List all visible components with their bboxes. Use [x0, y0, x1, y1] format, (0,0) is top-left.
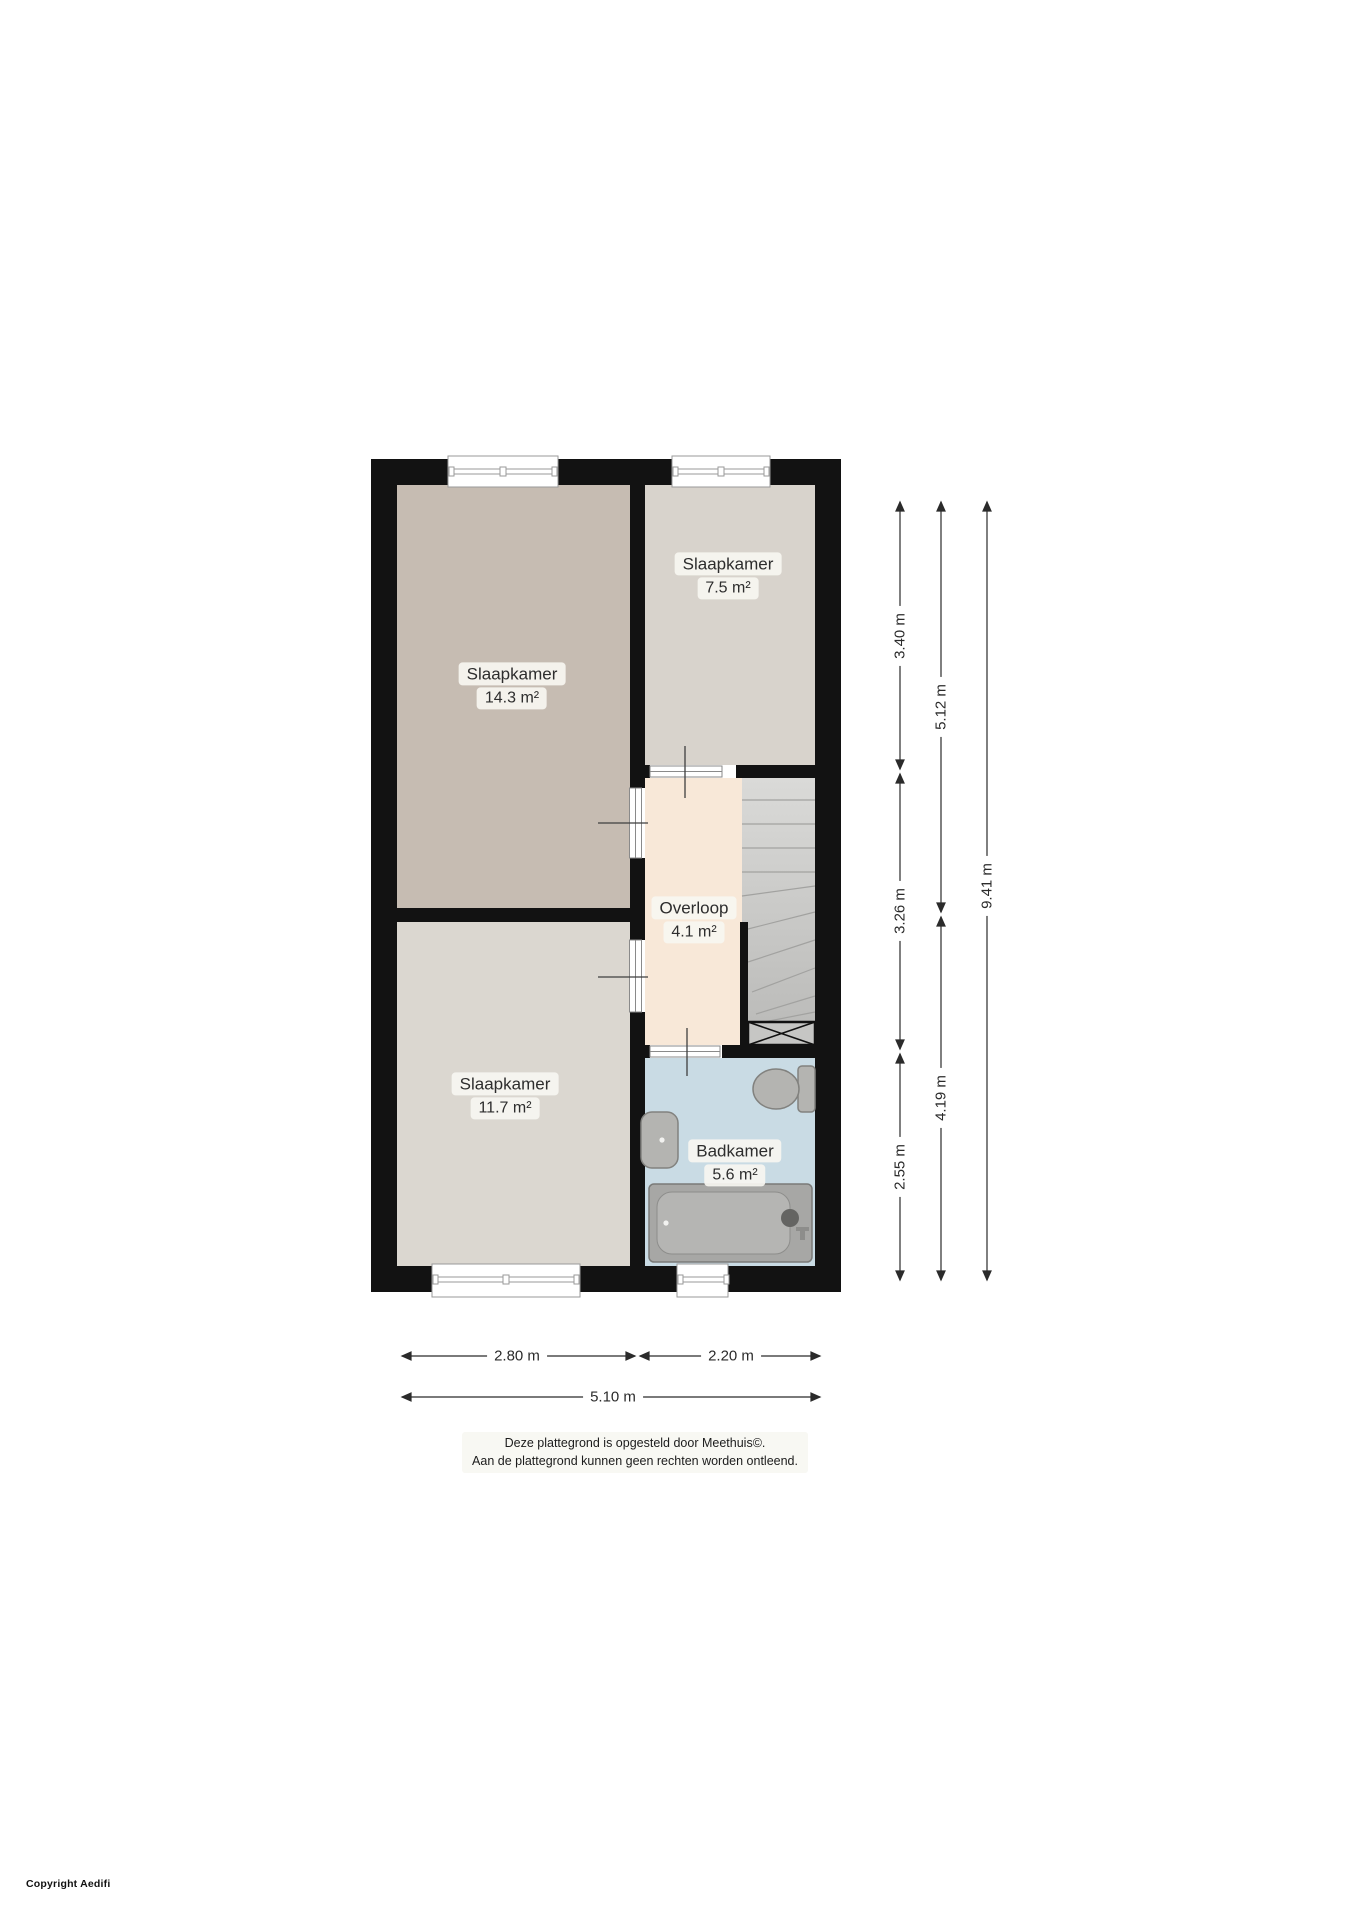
room-area: 5.6 m²: [704, 1165, 765, 1187]
dim-label-326: 3.26 m: [891, 881, 910, 941]
footer-note: Deze plattegrond is opgesteld door Meeth…: [462, 1432, 808, 1473]
room-label-overloop: Overloop 4.1 m²: [652, 896, 737, 943]
dim-label-255: 2.55 m: [891, 1137, 910, 1197]
wall-divider-upper: [630, 485, 645, 788]
window-bathroom: [677, 1264, 729, 1297]
room-name: Slaapkamer: [459, 662, 566, 685]
room-name: Badkamer: [688, 1139, 781, 1162]
wall-left: [371, 459, 397, 1292]
room-area: 7.5 m²: [697, 578, 758, 600]
room-area: 14.3 m²: [477, 688, 547, 710]
room-name: Slaapkamer: [675, 552, 782, 575]
dim-label-512: 5.12 m: [932, 677, 951, 737]
staircase: [742, 778, 815, 1022]
wall-badkamer-a: [645, 1045, 650, 1058]
room-area: 11.7 m²: [470, 1098, 539, 1120]
toilet: [753, 1066, 815, 1112]
dim-label-340: 3.40 m: [891, 606, 910, 666]
shaft-xbox: [748, 1022, 815, 1045]
dim-label-941: 9.41 m: [978, 856, 997, 916]
wall-bedroom7-a: [645, 765, 650, 778]
footer-line-2: Aan de plattegrond kunnen geen rechten w…: [472, 1453, 798, 1471]
wall-bedroom7-b: [736, 765, 815, 778]
dim-label-510: 5.10 m: [583, 1388, 643, 1407]
dim-label-220: 2.20 m: [701, 1347, 761, 1366]
room-name: Slaapkamer: [452, 1072, 559, 1095]
wall-badkamer-b: [722, 1045, 815, 1058]
room-area: 4.1 m²: [663, 922, 724, 944]
room-floor-slaapkamer-7: [645, 485, 815, 765]
washbasin: [641, 1112, 678, 1168]
wall-divider-mid: [630, 858, 645, 940]
window-bottom-left: [432, 1264, 580, 1297]
wall-stairs-side: [740, 922, 748, 1045]
room-label-badkamer: Badkamer 5.6 m²: [688, 1139, 781, 1186]
room-label-slaapkamer-11: Slaapkamer 11.7 m²: [452, 1072, 559, 1119]
window-top-right: [672, 456, 770, 487]
room-label-slaapkamer-14: Slaapkamer 14.3 m²: [459, 662, 566, 709]
room-label-slaapkamer-7: Slaapkamer 7.5 m²: [675, 552, 782, 599]
room-name: Overloop: [652, 896, 737, 919]
floorplan-drawing: [0, 0, 1358, 1920]
dim-label-419: 4.19 m: [932, 1068, 951, 1128]
wall-between-bedrooms: [371, 908, 630, 922]
copyright-text: Copyright Aedifi: [26, 1878, 110, 1890]
bathtub: [649, 1184, 812, 1262]
footer-line-1: Deze plattegrond is opgesteld door Meeth…: [472, 1435, 798, 1453]
floorplan-page: Slaapkamer 14.3 m² Slaapkamer 7.5 m² Ove…: [0, 0, 1358, 1920]
wall-right: [815, 459, 841, 1292]
dim-label-280: 2.80 m: [487, 1347, 547, 1366]
window-top-left: [448, 456, 558, 487]
